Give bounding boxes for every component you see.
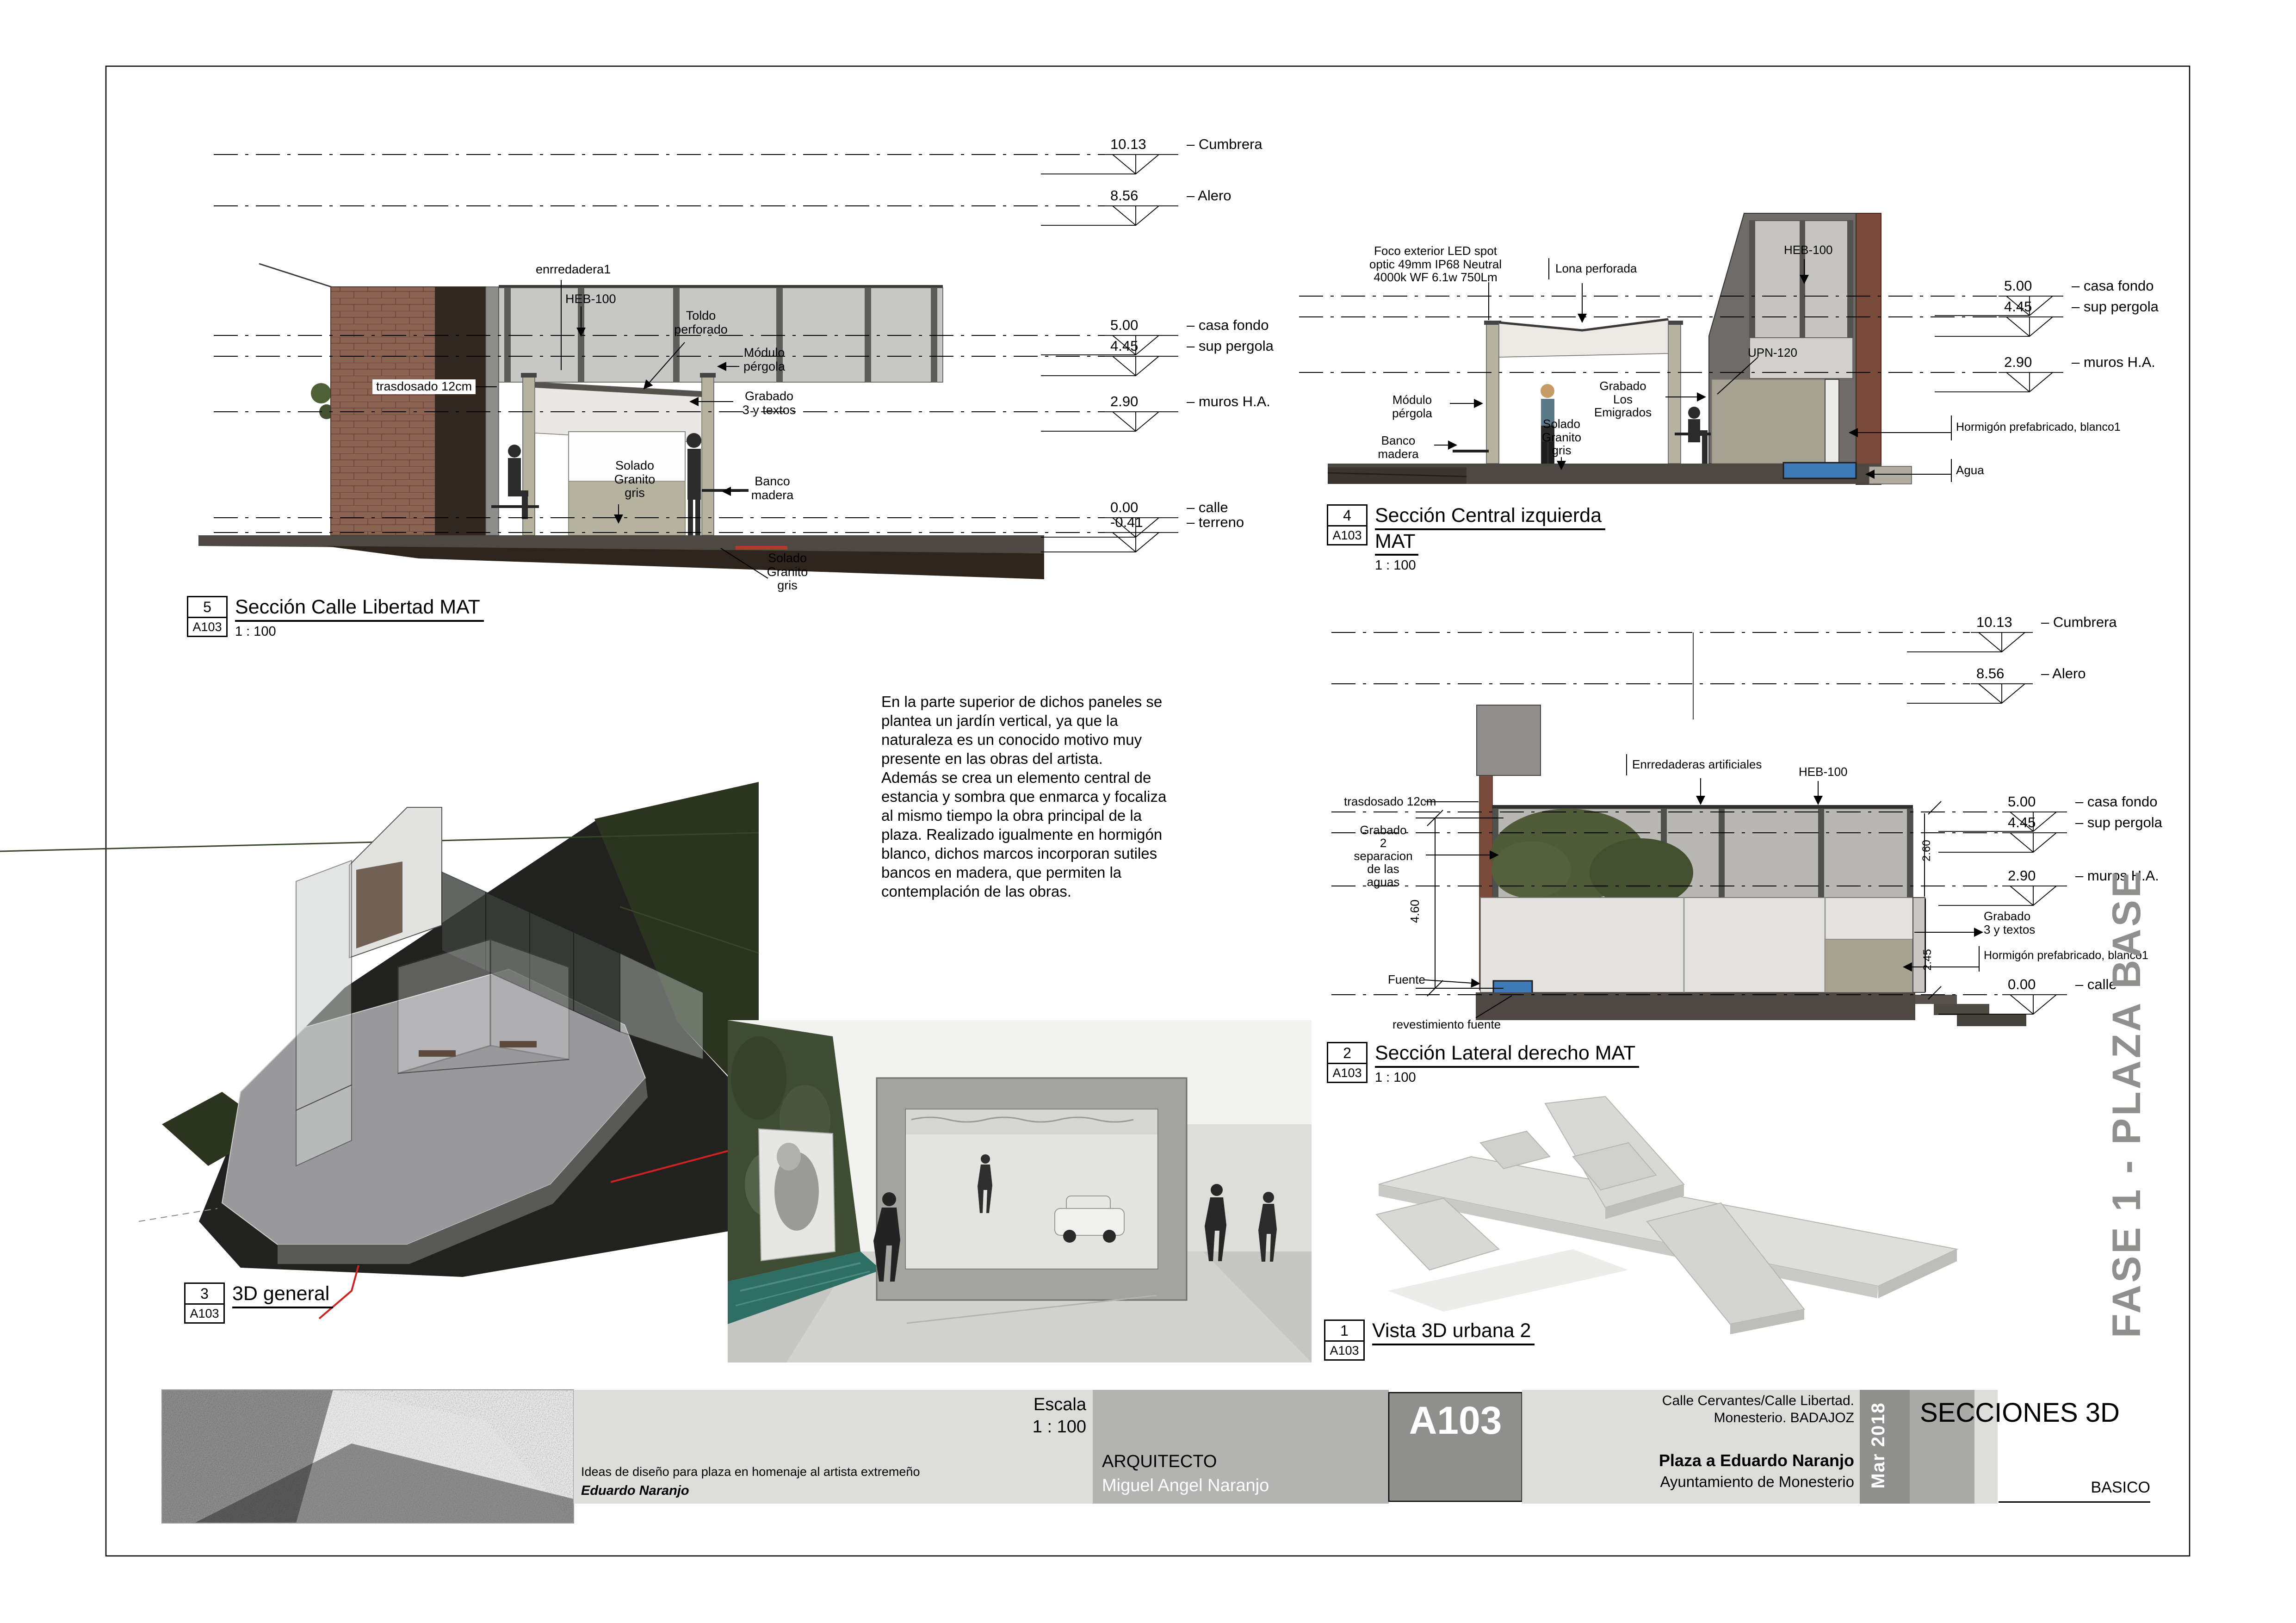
client-name: Ayuntamiento de Monesterio xyxy=(1527,1473,1854,1491)
address-line2: Monesterio. BADAJOZ xyxy=(1582,1410,1854,1426)
tag-box: 5 A103 xyxy=(187,596,228,637)
scale-block: Escala 1 : 100 xyxy=(962,1394,1086,1438)
sheet-code: A103 xyxy=(1389,1398,1522,1443)
view-title-line2: MAT xyxy=(1375,530,1418,556)
sheet-title: SECCIONES 3D xyxy=(1920,1397,2120,1428)
architect-label: ARQUITECTO xyxy=(1102,1452,1217,1472)
tag-box: 1 A103 xyxy=(1324,1319,1365,1361)
view-scale: 1 : 100 xyxy=(235,624,484,639)
view-tag-section5: 5 A103 Sección Calle Libertad MAT 1 : 10… xyxy=(187,596,484,639)
view-number: 1 xyxy=(1325,1321,1363,1342)
view-scale: 1 : 100 xyxy=(1375,558,1605,573)
view-title: 3D general xyxy=(232,1282,333,1308)
view-number: 2 xyxy=(1328,1043,1366,1064)
photo-render xyxy=(728,1020,1312,1363)
view-scale: 1 : 100 xyxy=(1375,1070,1639,1085)
view-number: 4 xyxy=(1328,506,1366,527)
view-tag-section2: 2 A103 Sección Lateral derecho MAT 1 : 1… xyxy=(1327,1042,1639,1085)
phase-banner: FASE 1 - PLAZA BASE xyxy=(2104,898,2150,1338)
view-title: Sección Central izquierda xyxy=(1375,504,1605,530)
status: BASICO xyxy=(1999,1479,2150,1503)
sheet-ref: A103 xyxy=(1328,527,1366,544)
tag-box: 2 A103 xyxy=(1327,1042,1368,1083)
section4-drawing xyxy=(1328,213,1912,484)
view-title: Sección Lateral derecho MAT xyxy=(1375,1042,1639,1068)
scale-label: Escala xyxy=(962,1394,1086,1416)
address-line1: Calle Cervantes/Calle Libertad. xyxy=(1582,1392,1854,1410)
project-description: Ideas de diseño para plaza en homenaje a… xyxy=(581,1465,920,1479)
sheet-ref: A103 xyxy=(186,1305,223,1322)
view-tag-section4: 4 A103 Sección Central izquierda MAT 1 :… xyxy=(1327,504,1605,573)
sheet-ref: A103 xyxy=(1328,1064,1366,1082)
view-tag-3dgeneral: 3 A103 3D general xyxy=(184,1282,333,1324)
drawing-sheet: enrredadera1HEB-100Toldo perforadoMódulo… xyxy=(0,0,2296,1623)
date: Mar 2018 xyxy=(1868,1392,1889,1499)
sheet-ref: A103 xyxy=(188,618,226,636)
view-number: 3 xyxy=(186,1284,223,1305)
view-tag-vista3d: 1 A103 Vista 3D urbana 2 xyxy=(1324,1319,1535,1361)
view-number: 5 xyxy=(188,597,226,618)
description-paragraph: En la parte superior de dichos paneles s… xyxy=(881,692,1251,901)
view-title: Sección Calle Libertad MAT xyxy=(235,596,484,622)
view-title: Vista 3D urbana 2 xyxy=(1372,1319,1535,1345)
tag-box: 4 A103 xyxy=(1327,504,1368,545)
section2-drawing xyxy=(1476,705,2026,1026)
3d-general-view xyxy=(0,782,759,1319)
artist-name: Eduardo Naranjo xyxy=(581,1483,689,1499)
tag-box: 3 A103 xyxy=(184,1282,225,1324)
section5-drawing xyxy=(198,264,1044,579)
sheet-ref: A103 xyxy=(1325,1342,1363,1359)
scale-value: 1 : 100 xyxy=(962,1416,1086,1438)
urban-3d-view xyxy=(1376,1096,1957,1334)
architect-name: Miguel Angel Naranjo xyxy=(1102,1476,1269,1496)
project-title: Plaza a Eduardo Naranjo xyxy=(1527,1451,1854,1470)
